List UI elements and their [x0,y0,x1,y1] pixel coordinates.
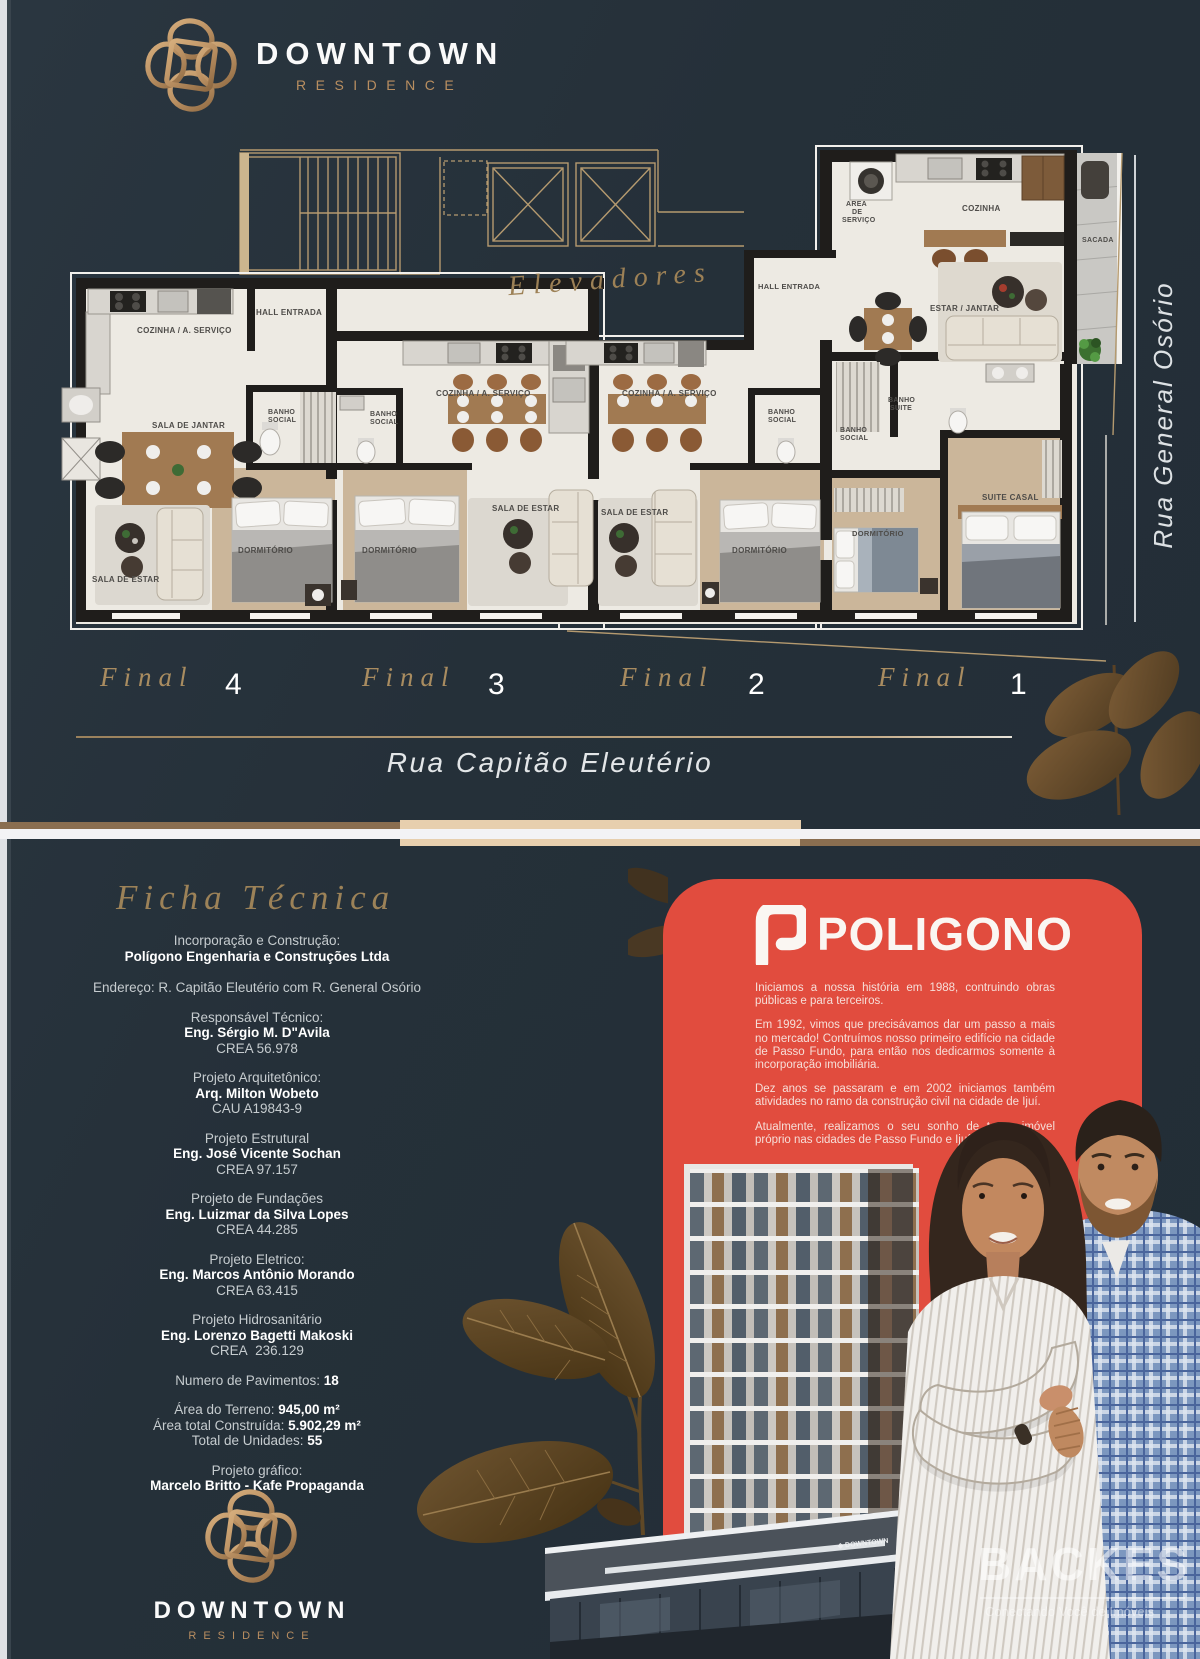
svg-text:SOCIAL: SOCIAL [370,419,399,426]
svg-text:BANHO: BANHO [268,409,295,416]
svg-text:AREA: AREA [846,201,867,208]
svg-text:COZINHA: COZINHA [962,204,1001,213]
svg-text:SALA DE ESTAR: SALA DE ESTAR [601,508,668,517]
svg-text:HALL ENTRADA: HALL ENTRADA [256,308,322,317]
svg-text:HALL ENTRADA: HALL ENTRADA [758,282,820,291]
svg-text:SOCIAL: SOCIAL [268,417,297,424]
svg-text:SUITE: SUITE [890,405,912,412]
svg-text:DORMITÓRIO: DORMITÓRIO [362,546,417,555]
svg-text:BANHO: BANHO [888,397,915,404]
svg-text:DORMITÓRIO: DORMITÓRIO [238,546,293,555]
svg-text:SOCIAL: SOCIAL [840,435,869,442]
svg-text:SALA DE ESTAR: SALA DE ESTAR [492,504,559,513]
svg-text:BANHO: BANHO [768,409,795,416]
svg-text:DE: DE [852,209,862,216]
svg-text:SALA DE ESTAR: SALA DE ESTAR [92,575,159,584]
svg-text:COZINHA / A. SERVIÇO: COZINHA / A. SERVIÇO [622,389,717,398]
svg-text:ESTAR / JANTAR: ESTAR / JANTAR [930,304,999,313]
svg-text:COZINHA / A. SERVIÇO: COZINHA / A. SERVIÇO [137,326,232,335]
svg-text:SERVIÇO: SERVIÇO [842,217,876,224]
svg-text:SUITE CASAL: SUITE CASAL [982,493,1039,502]
svg-text:BANHO: BANHO [370,411,397,418]
svg-text:COZINHA / A. SERVIÇO: COZINHA / A. SERVIÇO [436,389,531,398]
svg-text:SOCIAL: SOCIAL [768,417,797,424]
svg-text:SALA DE JANTAR: SALA DE JANTAR [152,421,225,430]
svg-text:SACADA: SACADA [1082,237,1114,244]
svg-text:BANHO: BANHO [840,427,867,434]
svg-text:DORMITÓRIO: DORMITÓRIO [852,529,904,538]
svg-text:DORMITÓRIO: DORMITÓRIO [732,546,787,555]
